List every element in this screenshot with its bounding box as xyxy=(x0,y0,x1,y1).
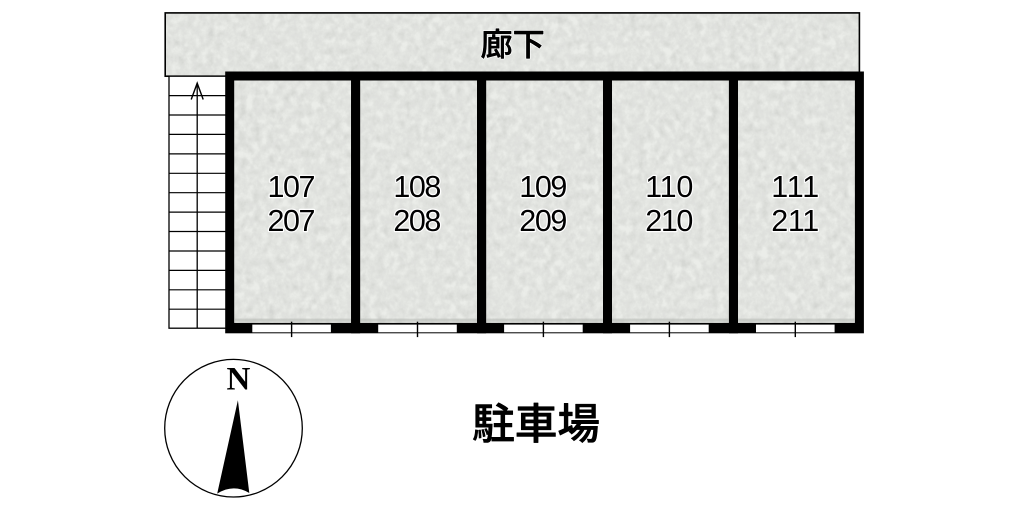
svg-text:108: 108 xyxy=(393,170,441,204)
svg-text:207: 207 xyxy=(268,204,316,238)
svg-text:211: 211 xyxy=(771,204,819,238)
svg-text:107: 107 xyxy=(268,170,316,204)
svg-text:210: 210 xyxy=(645,204,693,238)
svg-text:N: N xyxy=(226,362,250,398)
svg-text:111: 111 xyxy=(771,170,819,204)
svg-text:208: 208 xyxy=(393,204,441,238)
svg-text:209: 209 xyxy=(519,204,567,238)
svg-text:109: 109 xyxy=(519,170,567,204)
svg-text:110: 110 xyxy=(645,170,693,204)
